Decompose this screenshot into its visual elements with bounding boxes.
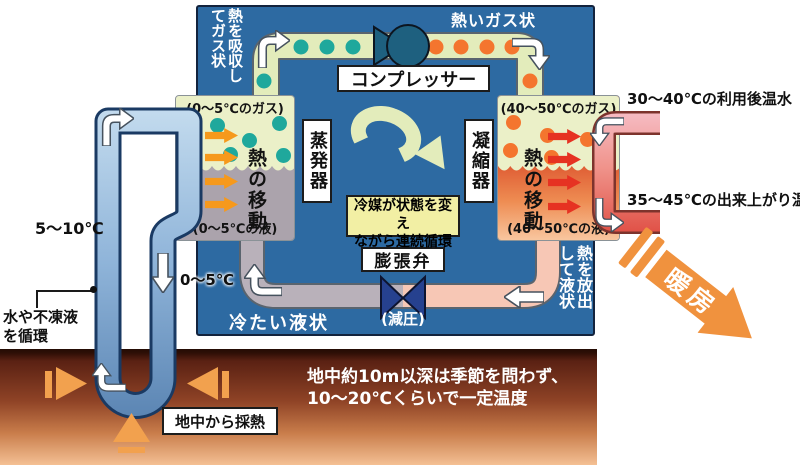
release-heat-label: 熱を放出 して液状 — [556, 245, 592, 325]
cold-gas-dot — [210, 118, 225, 133]
flow-arrow-liquid-up-into-evaporator — [244, 264, 282, 302]
ground-heat-extraction-box: 地中から採熱 — [162, 407, 278, 435]
loop-cold-temp-label: 0〜5℃ — [180, 269, 234, 290]
heat-pump-diagram: 地中約10m以深は季節を問わず、 10〜20℃くらいで一定温度 — [0, 0, 800, 465]
cold-gas-dot — [272, 116, 287, 131]
evaporator-name-box: 蒸発器 — [302, 119, 332, 203]
heating-output-arrow-group: 暖房 — [614, 222, 769, 361]
ground-temperature-note: 地中約10m以深は季節を問わず、 10〜20℃くらいで一定温度 — [307, 366, 568, 410]
flow-arrow-uturn-underground — [92, 363, 126, 397]
absorb-heat-label: 熱を吸収し てガス状 — [209, 8, 243, 108]
hot-gas-state-label: 熱いガス状 — [451, 7, 536, 31]
cold-liquid-state-label: 冷たい液状 — [229, 309, 329, 335]
hot-gas-dot — [506, 115, 521, 130]
flow-arrow-liquid-left — [504, 286, 544, 308]
flow-arrow-water-top — [96, 108, 134, 146]
flow-arrow-supply-water-out — [590, 198, 624, 232]
circulation-leader-dot — [90, 286, 97, 293]
circulation-leader-line — [36, 290, 93, 308]
flow-arrow-water-down — [152, 253, 174, 293]
condenser-name-box: 凝縮器 — [464, 119, 494, 203]
cold-gas-dot — [276, 148, 291, 163]
flow-arrow-refrigerant-right-down — [512, 32, 550, 70]
ground-heat-arrow-bar — [222, 371, 229, 398]
decompression-label: (減圧) — [361, 308, 445, 329]
ground-heat-arrow-bar — [118, 447, 145, 453]
heating-arrow: 暖房 — [638, 240, 770, 361]
cycle-note-box: 冷媒が状態を変え ながら連続循環 — [346, 195, 460, 237]
ground-heat-arrow-bar — [45, 371, 52, 398]
supply-water-label: 35〜45℃の出来上がり温水 — [627, 189, 800, 210]
evaporator-heat-transfer-label: 熱の移動 — [245, 148, 267, 232]
compressor-label-box: コンプレッサー — [337, 65, 490, 92]
hot-gas-dot — [503, 143, 518, 158]
heating-label: 暖房 — [657, 259, 726, 324]
loop-warm-temp-label: 5〜10℃ — [35, 215, 104, 239]
flow-arrow-refrigerant-up-right — [252, 30, 290, 68]
evaporator-liquid-label: (0〜5℃の液) — [176, 218, 294, 237]
return-water-label: 30〜40℃の利用後温水 — [627, 88, 792, 109]
condenser-heat-transfer-label: 熱の移動 — [521, 148, 543, 232]
circulation-label: 水や不凍液 を循環 — [3, 308, 78, 346]
cold-gas-dot — [242, 133, 257, 148]
flow-arrow-return-water-down — [590, 112, 624, 146]
